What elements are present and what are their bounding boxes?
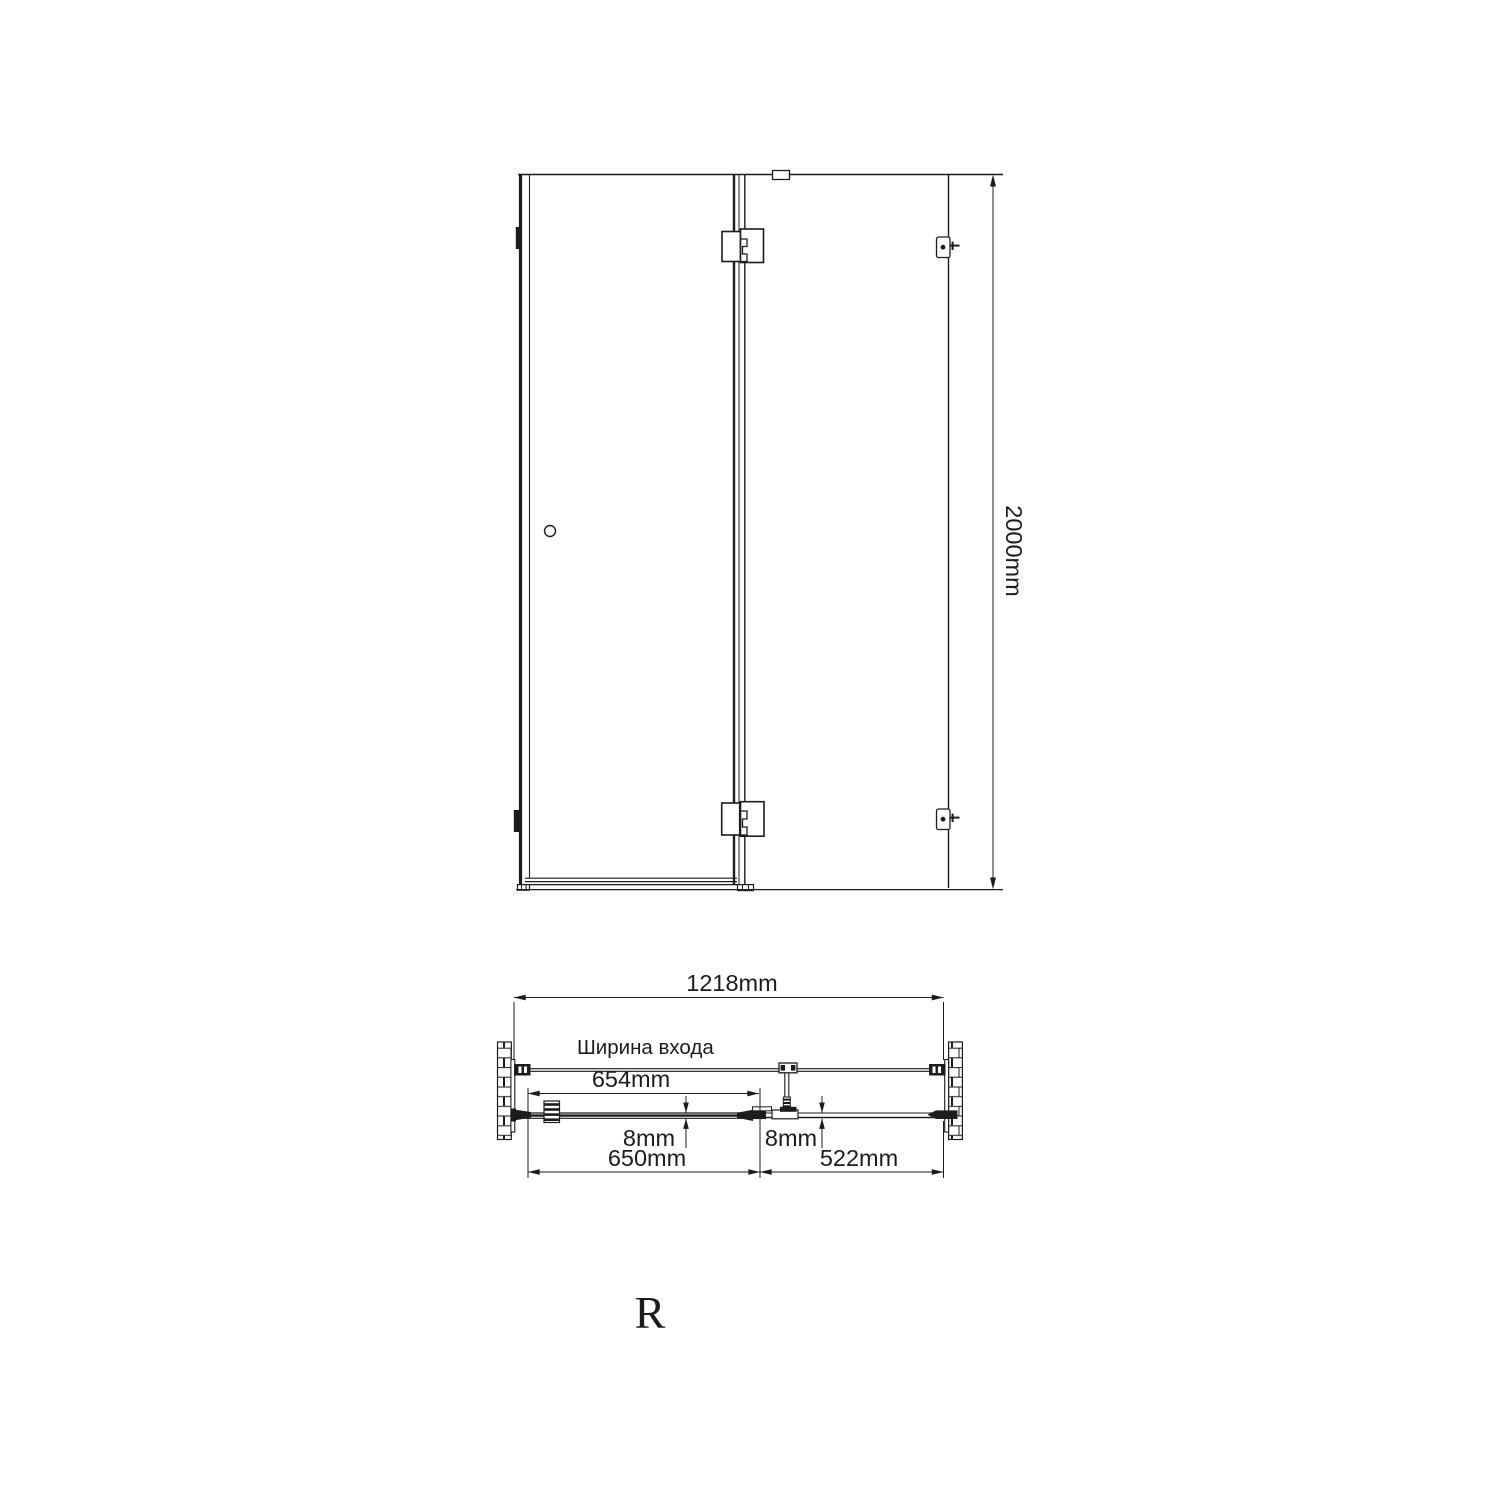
- left-profile-bracket-top: [516, 227, 521, 249]
- threshold-sill: [518, 878, 754, 890]
- support-bar-left-mount: [514, 1064, 531, 1076]
- overall-width-dimension: 1218mm: [514, 970, 944, 1000]
- right-wall-brickwork: [949, 1042, 963, 1140]
- upper-hinge: [722, 229, 764, 263]
- drawing-canvas: 2000mm: [0, 0, 1500, 1500]
- fixed-glass-thickness-dimension: 8mm: [765, 1096, 825, 1151]
- wall-bracket-lower: [937, 809, 960, 830]
- entrance-width-label: 654mm: [592, 1066, 670, 1092]
- support-bar-right-mount: [929, 1064, 946, 1076]
- wall-bracket-upper: [937, 237, 960, 258]
- support-bar-glass-bracket: [779, 1063, 797, 1107]
- door-glass-thickness-dimension: 8mm: [623, 1096, 689, 1151]
- entrance-caption: Ширина входа: [577, 1036, 714, 1059]
- entrance-width-dimension: 654mm: [528, 1066, 759, 1096]
- glass-panels-plan: [515, 1113, 944, 1118]
- centre-hinge-plan: [737, 1107, 798, 1121]
- support-bar-top-connector: [773, 171, 790, 180]
- support-bar: [514, 1063, 946, 1107]
- front-elevation-view: 2000mm: [514, 171, 1027, 891]
- plan-view: 1218mm Ширина входа 654mm 8mm 8mm: [498, 970, 963, 1178]
- left-wall-brickwork: [498, 1042, 512, 1140]
- height-dimension-label: 2000mm: [1001, 505, 1027, 596]
- handle-hole: [545, 526, 556, 537]
- door-width-dimension: 650mm: [528, 1145, 760, 1175]
- shower-enclosure-technical-drawing: 2000mm: [0, 0, 1500, 1500]
- fixed-panel-width-label: 522mm: [820, 1145, 898, 1171]
- height-dimension: 2000mm: [990, 175, 1027, 889]
- orientation-letter: R: [635, 1287, 666, 1338]
- door-handle-knob: [544, 1101, 560, 1123]
- left-profile-bracket-bottom: [514, 810, 519, 832]
- lower-hinge: [722, 802, 764, 837]
- door-width-label: 650mm: [608, 1145, 686, 1171]
- overall-width-label: 1218mm: [686, 970, 777, 996]
- fixed-glass-thickness-label: 8mm: [765, 1125, 817, 1151]
